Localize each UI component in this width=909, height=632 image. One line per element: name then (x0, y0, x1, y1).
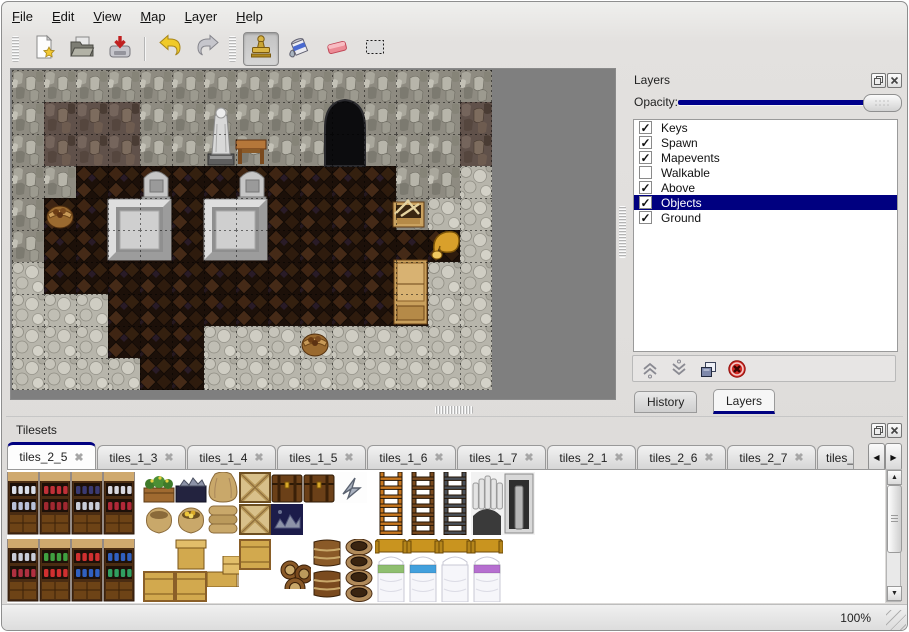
tilesets-close-button[interactable] (887, 423, 902, 438)
tileset-tab-tiles_2_7[interactable]: tiles_2_7✖ (727, 445, 816, 469)
toolbar-separator (144, 37, 146, 61)
menu-file[interactable]: File (12, 9, 33, 29)
stamp-tool-button[interactable] (243, 32, 279, 66)
tileset-tile-arch[interactable] (471, 472, 503, 540)
tileset-tile-sacktall[interactable] (207, 472, 239, 508)
layer-label: Mapevents (661, 151, 720, 165)
layer-label: Spawn (661, 136, 698, 150)
toolbar (10, 32, 394, 66)
eraser-tool-button[interactable] (319, 32, 355, 66)
tileset-tile-crate[interactable] (175, 571, 207, 603)
redo-button[interactable] (190, 32, 226, 66)
tab-scroll-right-button[interactable]: ▶ (885, 443, 902, 471)
tab-close-icon[interactable]: ✖ (254, 451, 263, 464)
tileset-tile-ladder[interactable] (439, 472, 471, 540)
resize-grip[interactable] (886, 610, 906, 630)
tileset-tile-crate[interactable] (239, 539, 271, 575)
tileset-tile-rune[interactable] (335, 472, 367, 508)
eraser-icon (323, 33, 351, 66)
menu-bar: FileEditViewMapLayerHelp (12, 9, 263, 29)
duplicate-layer-button[interactable] (697, 358, 718, 379)
tileset-tab-tiles_1_5[interactable]: tiles_1_5✖ (277, 445, 366, 469)
tab-history[interactable]: History (634, 391, 697, 413)
undo-button[interactable] (152, 32, 188, 66)
opacity-slider-handle[interactable] (863, 94, 902, 112)
layer-list: ✓Keys✓Spawn✓MapeventsWalkable✓Above✓Obje… (633, 119, 898, 352)
layer-row-keys[interactable]: ✓Keys (634, 120, 897, 135)
tab-label: tiles_ (826, 451, 854, 465)
tileset-tile-bed[interactable] (471, 539, 503, 603)
tileset-tab-tiles_1_6[interactable]: tiles_1_6✖ (367, 445, 456, 469)
toolbar-handle[interactable] (229, 36, 236, 62)
layer-checkbox-spawn[interactable]: ✓ (639, 136, 652, 149)
tab-scroll-left-button[interactable]: ◀ (868, 443, 885, 471)
tileset-tile-chest[interactable] (271, 472, 303, 508)
scroll-up-arrow[interactable]: ▲ (887, 470, 902, 485)
move-layer-up-button[interactable] (639, 358, 660, 379)
tab-close-icon[interactable]: ✖ (524, 451, 533, 464)
tileset-tile-archdoor[interactable] (503, 472, 535, 540)
layer-row-walkable[interactable]: Walkable (634, 165, 897, 180)
layer-row-spawn[interactable]: ✓Spawn (634, 135, 897, 150)
tab-label: tiles_2_6 (649, 451, 697, 465)
tileset-tile-cratex[interactable] (239, 472, 271, 508)
tileset-tile-sackpile[interactable] (207, 504, 239, 540)
tileset-tile-cratex[interactable] (239, 504, 271, 540)
tilesets-panel-title: Tilesets (16, 423, 57, 437)
tileset-tile-orebox[interactable] (175, 472, 207, 508)
layer-checkbox-mapevents[interactable]: ✓ (639, 151, 652, 164)
tab-label: tiles_1_4 (199, 451, 247, 465)
tileset-tile-bed[interactable] (375, 539, 407, 603)
open-icon (68, 33, 96, 66)
vertical-splitter-handle[interactable] (619, 206, 626, 258)
tab-label: tiles_1_5 (289, 451, 337, 465)
tab-label: tiles_1_3 (109, 451, 157, 465)
menu-edit[interactable]: Edit (52, 9, 74, 29)
opacity-label: Opacity: (634, 95, 678, 109)
tab-close-icon[interactable]: ✖ (434, 451, 443, 464)
tileset-tab-tiles_2_5[interactable]: tiles_2_5✖ (7, 442, 96, 469)
scrollbar-thumb[interactable] (887, 485, 902, 553)
fill-tool-button[interactable] (281, 32, 317, 66)
layers-panel-title: Layers (634, 73, 670, 87)
layer-checkbox-walkable[interactable] (639, 166, 652, 179)
layer-checkbox-objects[interactable]: ✓ (639, 196, 652, 209)
tileset-tile-sackopen[interactable] (143, 504, 175, 540)
layers-float-button[interactable] (871, 73, 886, 88)
tileset-tile-ladder[interactable] (375, 472, 407, 540)
tileset-tab-tiles_1_3[interactable]: tiles_1_3✖ (97, 445, 186, 469)
tab-label: tiles_2_7 (739, 451, 787, 465)
tab-label: tiles_2_5 (19, 450, 67, 464)
stamp-icon (247, 33, 275, 66)
layer-checkbox-keys[interactable]: ✓ (639, 121, 652, 134)
tab-close-icon[interactable]: ✖ (74, 451, 83, 464)
tileset-tile-oreblue[interactable] (271, 504, 303, 540)
tileset-tile-bed[interactable] (439, 539, 471, 603)
delete-layer-button[interactable] (726, 358, 747, 379)
redo-icon (194, 33, 222, 66)
tileset-scrollbar[interactable]: ▲ ▼ (886, 469, 901, 602)
tileset-tile-flowerbox[interactable] (143, 472, 175, 508)
undo-icon (156, 33, 184, 66)
tileset-tile-potstack[interactable] (343, 539, 375, 603)
status-bar: 100% (2, 604, 907, 631)
scroll-down-arrow[interactable]: ▼ (887, 586, 902, 601)
tileset-tile-shelf[interactable] (71, 472, 103, 540)
tab-close-icon[interactable]: ✖ (614, 451, 623, 464)
open-file-button[interactable] (64, 32, 100, 66)
tileset-tile-shelf[interactable] (7, 472, 39, 540)
tileset-tile-cratepile[interactable] (207, 556, 239, 592)
tileset-tile-cratelid[interactable] (175, 539, 207, 575)
tileset-tile-shelf2[interactable] (103, 539, 135, 603)
tileset-tab-tiles_2_1[interactable]: tiles_2_1✖ (547, 445, 636, 469)
new-icon (30, 33, 58, 66)
tileset-tile-barrelstack[interactable] (311, 539, 343, 603)
tileset-tab-tiles[interactable]: tiles_ (817, 445, 854, 469)
tab-close-icon[interactable]: ✖ (344, 451, 353, 464)
layer-label: Objects (661, 196, 702, 210)
tileset-tile-crate[interactable] (143, 571, 175, 603)
toolbar-handle[interactable] (12, 36, 19, 62)
layer-row-ground[interactable]: ✓Ground (634, 210, 897, 225)
layer-label: Above (661, 181, 695, 195)
save-icon (106, 33, 134, 66)
tab-label: tiles_1_7 (469, 451, 517, 465)
tileset-tile-sackgold[interactable] (175, 504, 207, 540)
layers-close-button[interactable] (887, 73, 902, 88)
tab-layers[interactable]: Layers (713, 389, 775, 414)
tab-label: tiles_2_1 (559, 451, 607, 465)
tab-close-icon[interactable]: ✖ (704, 451, 713, 464)
tileset-tile-bed[interactable] (407, 539, 439, 603)
tileset-tile-shelf[interactable] (103, 472, 135, 540)
tilesets-float-button[interactable] (871, 423, 886, 438)
layer-checkbox-above[interactable]: ✓ (639, 181, 652, 194)
tileset-tile-shelf2[interactable] (39, 539, 71, 603)
tileset-tab-bar: tiles_2_5✖tiles_1_3✖tiles_1_4✖tiles_1_5✖… (7, 442, 865, 469)
fill-icon (285, 33, 313, 66)
layer-row-mapevents[interactable]: ✓Mapevents (634, 150, 897, 165)
tileset-tab-tiles_2_6[interactable]: tiles_2_6✖ (637, 445, 726, 469)
app-window: FileEditViewMapLayerHelp Layers Opacity:… (1, 1, 908, 631)
layer-label: Walkable (661, 166, 710, 180)
tileset-tab-tiles_1_7[interactable]: tiles_1_7✖ (457, 445, 546, 469)
layer-row-objects[interactable]: ✓Objects (634, 195, 897, 210)
tileset-tile-shelf[interactable] (39, 472, 71, 540)
save-file-button[interactable] (102, 32, 138, 66)
tileset-tile-barrelpile[interactable] (279, 558, 311, 594)
tab-close-icon[interactable]: ✖ (794, 451, 803, 464)
map-view[interactable] (10, 68, 616, 400)
new-file-button[interactable] (26, 32, 62, 66)
tileset-tile-chest[interactable] (303, 472, 335, 508)
tileset-tab-tiles_1_4[interactable]: tiles_1_4✖ (187, 445, 276, 469)
select-tool-button[interactable] (357, 32, 393, 66)
tab-close-icon[interactable]: ✖ (164, 451, 173, 464)
tileset-tile-ladder[interactable] (407, 472, 439, 540)
horizontal-splitter-handle[interactable] (435, 406, 473, 414)
panel-divider (6, 416, 903, 417)
tileset-content[interactable] (7, 469, 885, 603)
move-layer-down-button[interactable] (668, 358, 689, 379)
tileset-tile-shelf2[interactable] (7, 539, 39, 603)
layer-checkbox-ground[interactable]: ✓ (639, 211, 652, 224)
layer-label: Ground (661, 211, 701, 225)
menu-help[interactable]: Help (236, 9, 263, 29)
menu-map[interactable]: Map (140, 9, 165, 29)
map-canvas[interactable] (12, 70, 492, 395)
select-icon (361, 33, 389, 66)
zoom-level: 100% (840, 611, 871, 625)
menu-view[interactable]: View (93, 9, 121, 29)
menu-layer[interactable]: Layer (185, 9, 218, 29)
layer-buttons-bar (632, 355, 896, 382)
tab-label: tiles_1_6 (379, 451, 427, 465)
tileset-tile-shelf2[interactable] (71, 539, 103, 603)
layer-row-above[interactable]: ✓Above (634, 180, 897, 195)
layer-label: Keys (661, 121, 688, 135)
